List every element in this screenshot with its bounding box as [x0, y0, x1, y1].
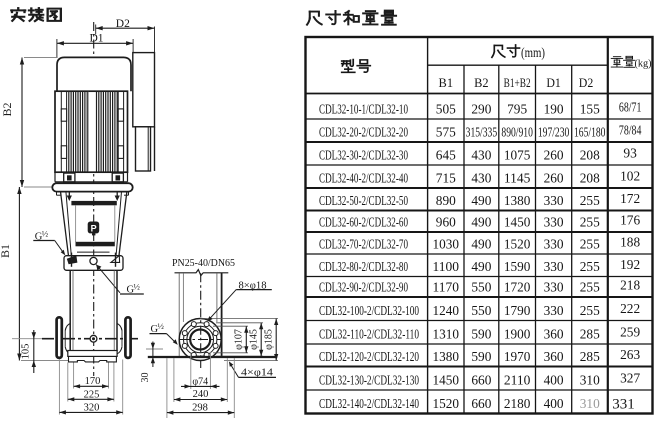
svg-text:795: 795 [507, 102, 527, 117]
svg-text:1520: 1520 [433, 396, 460, 411]
svg-text:1240: 1240 [433, 303, 460, 318]
svg-text:960: 960 [436, 215, 456, 230]
svg-text:260: 260 [544, 171, 564, 186]
svg-text:CDL32-70-2/CDL32-70: CDL32-70-2/CDL32-70 [319, 237, 408, 252]
svg-text:1450: 1450 [433, 373, 460, 388]
svg-text:CDL32-120-2/CDL32-120: CDL32-120-2/CDL32-120 [319, 349, 419, 364]
svg-text:P: P [91, 223, 97, 233]
svg-text:192: 192 [620, 257, 640, 272]
svg-text:285: 285 [580, 327, 600, 342]
svg-text:315/335: 315/335 [466, 125, 498, 140]
svg-text:190: 190 [544, 102, 564, 117]
svg-text:CDL32-130-2/CDL32-130: CDL32-130-2/CDL32-130 [319, 373, 419, 388]
svg-text:590: 590 [471, 327, 491, 342]
svg-text:102: 102 [620, 169, 640, 184]
svg-text:575: 575 [436, 125, 456, 140]
svg-text:CDL32-30-2/CDL32-30: CDL32-30-2/CDL32-30 [319, 148, 408, 163]
svg-text:330: 330 [544, 215, 564, 230]
svg-text:30: 30 [140, 373, 151, 383]
svg-text:197/230: 197/230 [538, 125, 570, 140]
svg-text:78/84: 78/84 [619, 123, 642, 138]
svg-text:225: 225 [84, 389, 100, 400]
svg-text:260: 260 [544, 148, 564, 163]
svg-text:645: 645 [436, 148, 456, 163]
svg-text:290: 290 [471, 102, 491, 117]
svg-text:172: 172 [620, 191, 640, 206]
svg-text:590: 590 [471, 349, 491, 364]
svg-text:255: 255 [580, 237, 600, 252]
svg-text:155: 155 [580, 102, 600, 117]
svg-text:360: 360 [544, 327, 564, 342]
svg-text:1075: 1075 [504, 148, 531, 163]
svg-text:310: 310 [580, 396, 600, 411]
svg-text:550: 550 [471, 280, 491, 295]
svg-text:½: ½ [134, 282, 141, 292]
svg-text:CDL32-110-2/CDL32-110: CDL32-110-2/CDL32-110 [319, 327, 419, 342]
svg-text:φ185: φ185 [263, 329, 274, 350]
svg-text:CDL32-60-2/CDL32-60: CDL32-60-2/CDL32-60 [319, 215, 408, 230]
svg-text:PN25-40/DN65: PN25-40/DN65 [172, 258, 235, 269]
svg-text:310: 310 [580, 373, 600, 388]
svg-text:890/910: 890/910 [501, 125, 533, 140]
svg-text:φ145: φ145 [248, 329, 259, 350]
svg-text:D1: D1 [546, 75, 561, 90]
svg-text:505: 505 [436, 102, 456, 117]
svg-text:255: 255 [580, 215, 600, 230]
svg-text:½: ½ [158, 321, 165, 331]
svg-text:165/180: 165/180 [574, 125, 606, 140]
svg-text:490: 490 [471, 193, 491, 208]
svg-text:B2: B2 [474, 75, 489, 90]
svg-text:170: 170 [85, 376, 101, 387]
svg-text:218: 218 [620, 278, 640, 293]
svg-text:330: 330 [544, 303, 564, 318]
svg-text:176: 176 [620, 213, 640, 228]
svg-text:660: 660 [471, 396, 491, 411]
svg-text:1170: 1170 [433, 280, 460, 295]
svg-text:1900: 1900 [504, 327, 531, 342]
svg-text:D2: D2 [116, 18, 130, 30]
svg-text:890: 890 [436, 193, 456, 208]
svg-text:D2: D2 [579, 75, 594, 90]
svg-text:255: 255 [580, 259, 600, 274]
svg-text:188: 188 [620, 235, 640, 250]
svg-text:B1: B1 [439, 75, 454, 90]
svg-text:CDL32-140-2/CDL32-140: CDL32-140-2/CDL32-140 [319, 396, 419, 411]
svg-text:φ107: φ107 [234, 329, 245, 350]
svg-text:400: 400 [544, 373, 564, 388]
svg-text:330: 330 [544, 259, 564, 274]
svg-text:1790: 1790 [504, 303, 531, 318]
svg-text:263: 263 [620, 347, 640, 362]
svg-text:CDL32-10-1/CDL32-10: CDL32-10-1/CDL32-10 [319, 102, 408, 117]
svg-text:1380: 1380 [504, 193, 531, 208]
svg-text:285: 285 [580, 349, 600, 364]
svg-text:(kg): (kg) [635, 58, 652, 70]
svg-text:255: 255 [580, 193, 600, 208]
svg-text:360: 360 [544, 349, 564, 364]
svg-text:490: 490 [471, 215, 491, 230]
svg-text:1380: 1380 [433, 349, 460, 364]
svg-text:1310: 1310 [433, 327, 460, 342]
svg-text:CDL32-80-2/CDL32-80: CDL32-80-2/CDL32-80 [319, 259, 408, 274]
svg-text:1720: 1720 [504, 280, 531, 295]
svg-text:1520: 1520 [504, 237, 531, 252]
svg-text:298: 298 [192, 402, 208, 413]
svg-text:330: 330 [544, 237, 564, 252]
svg-text:105: 105 [20, 344, 31, 360]
svg-text:(mm): (mm) [521, 45, 545, 60]
svg-text:B2: B2 [0, 102, 14, 116]
svg-text:208: 208 [580, 148, 600, 163]
svg-text:490: 490 [471, 259, 491, 274]
svg-text:φ74: φ74 [192, 377, 208, 388]
svg-text:1100: 1100 [433, 259, 460, 274]
svg-text:1145: 1145 [504, 171, 531, 186]
svg-text:CDL32-100-2/CDL32-100: CDL32-100-2/CDL32-100 [319, 303, 419, 318]
svg-text:B1+B2: B1+B2 [504, 75, 531, 90]
svg-text:CDL32-40-2/CDL32-40: CDL32-40-2/CDL32-40 [319, 171, 408, 186]
svg-text:331: 331 [612, 397, 635, 413]
svg-text:B1: B1 [0, 244, 12, 258]
svg-text:240: 240 [193, 389, 209, 400]
svg-text:255: 255 [580, 280, 600, 295]
svg-text:1590: 1590 [504, 259, 531, 274]
svg-text:715: 715 [436, 171, 456, 186]
svg-text:2180: 2180 [504, 396, 531, 411]
svg-text:CDL32-50-2/CDL32-50: CDL32-50-2/CDL32-50 [319, 193, 408, 208]
svg-text:430: 430 [471, 171, 491, 186]
svg-text:330: 330 [544, 280, 564, 295]
svg-text:2110: 2110 [504, 373, 531, 388]
svg-text:68/71: 68/71 [619, 100, 642, 115]
svg-text:327: 327 [620, 371, 640, 386]
svg-text:490: 490 [471, 237, 491, 252]
svg-text:D1: D1 [89, 33, 103, 45]
svg-text:259: 259 [620, 325, 640, 340]
svg-text:320: 320 [84, 402, 100, 413]
svg-text:222: 222 [620, 301, 640, 316]
svg-text:255: 255 [580, 303, 600, 318]
svg-text:430: 430 [471, 148, 491, 163]
svg-text:550: 550 [471, 303, 491, 318]
svg-text:660: 660 [471, 373, 491, 388]
svg-text:CDL32-90-2/CDL32-90: CDL32-90-2/CDL32-90 [319, 280, 408, 295]
svg-text:CDL32-20-2/CDL32-20: CDL32-20-2/CDL32-20 [319, 125, 408, 140]
svg-text:½: ½ [42, 228, 49, 238]
svg-text:208: 208 [580, 171, 600, 186]
svg-text:400: 400 [544, 396, 564, 411]
svg-text:1030: 1030 [433, 237, 460, 252]
svg-text:1970: 1970 [504, 349, 531, 364]
svg-text:1450: 1450 [504, 215, 531, 230]
svg-text:330: 330 [544, 193, 564, 208]
svg-text:93: 93 [623, 146, 637, 161]
